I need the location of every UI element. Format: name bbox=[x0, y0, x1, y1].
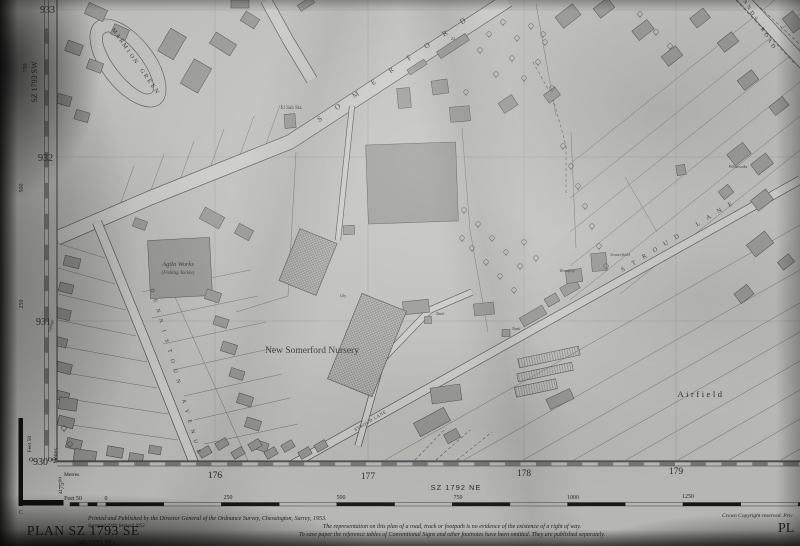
boundary-line bbox=[266, 105, 280, 144]
street-dennistoun-avenue-char: U bbox=[172, 368, 179, 374]
building bbox=[58, 282, 74, 294]
boundary-line bbox=[240, 116, 254, 155]
street-dennistoun-avenue-char: E bbox=[151, 298, 158, 304]
corner-mark-horizontal bbox=[19, 500, 64, 506]
tree-icon bbox=[512, 288, 517, 293]
building bbox=[158, 28, 187, 60]
tree-icon bbox=[498, 274, 503, 279]
building bbox=[63, 255, 81, 269]
sheet-border-layer bbox=[19, 0, 800, 506]
tree-icon bbox=[501, 20, 506, 25]
boundary-line bbox=[58, 268, 115, 284]
tree-icon bbox=[543, 40, 548, 45]
bottom-border-scale-block bbox=[351, 462, 366, 465]
building bbox=[236, 393, 253, 407]
street-dennistoun-avenue-char: O bbox=[169, 358, 176, 364]
border-scale-750: 750 bbox=[23, 64, 29, 73]
road-surface-nursery-drive bbox=[338, 106, 352, 240]
building bbox=[297, 0, 314, 11]
street-stroud-lane: STROUDLANE bbox=[620, 201, 734, 274]
building bbox=[84, 2, 107, 21]
scale-250: 250 bbox=[224, 495, 233, 501]
track-dashed-line bbox=[553, 98, 566, 146]
adjacent-plan-title: PL bbox=[778, 521, 794, 536]
grid-northing-932: 932 bbox=[38, 153, 53, 164]
el-sub-sta: El Sub Sta bbox=[280, 106, 302, 111]
left-border-scale-block bbox=[45, 28, 49, 43]
building bbox=[343, 225, 354, 234]
street-stroud-lane-char: L bbox=[695, 220, 702, 228]
tree-icon bbox=[462, 208, 467, 213]
boundary-line bbox=[57, 243, 105, 258]
imprint-line-1: Printed and Published by the Director Ge… bbox=[87, 515, 326, 522]
scale-bar-subblock bbox=[70, 503, 79, 507]
boundary-line bbox=[236, 296, 288, 312]
street-stroud-lane-char: R bbox=[641, 252, 649, 261]
scale-1250: 1250 bbox=[682, 494, 694, 500]
house-somerfield: Somerfield bbox=[610, 252, 630, 257]
boundary-line bbox=[470, 230, 488, 332]
glasshouse bbox=[279, 229, 337, 296]
building bbox=[180, 59, 211, 93]
scale-0: 0 bbox=[105, 496, 108, 502]
boundary-line bbox=[620, 150, 800, 294]
scale-bar-segment bbox=[741, 503, 799, 507]
building bbox=[213, 316, 229, 329]
scale-bar-segment bbox=[510, 503, 568, 507]
scale-bar-segment bbox=[625, 503, 683, 507]
house-woodjay: Woodjay bbox=[559, 268, 575, 273]
building bbox=[58, 397, 77, 411]
boundary-line bbox=[570, 116, 800, 300]
tank-2: Tank bbox=[512, 326, 522, 331]
street-stroud-lane-char: O bbox=[652, 246, 660, 255]
street-stroud-lane-char: D bbox=[673, 233, 681, 242]
scale-feet-50: Feet 50 bbox=[64, 496, 82, 502]
grid-easting-176: 176 bbox=[208, 471, 223, 481]
adjoining-sheet-south: SZ 1792 NE bbox=[431, 483, 482, 492]
border-scale-250: 250 bbox=[19, 300, 25, 309]
bottom-border-scale-block bbox=[320, 462, 335, 465]
street-marmion-green: MARMIONGREEN bbox=[110, 28, 160, 96]
house-number-22: 22 bbox=[451, 36, 456, 41]
scale-bar-segment bbox=[164, 503, 222, 507]
bottom-border-scale-block bbox=[567, 462, 582, 465]
bottom-border-scale-block bbox=[505, 462, 520, 465]
building bbox=[234, 223, 253, 240]
boundary-line bbox=[163, 322, 266, 344]
crown-copyright: Crown Copyright reserved. Pric bbox=[722, 513, 793, 519]
adjoining-sheet-west: SZ 1793 SW bbox=[30, 61, 39, 103]
airfield: Airfield bbox=[678, 389, 725, 399]
glass-shed bbox=[514, 379, 557, 398]
scale-bar-segment bbox=[221, 503, 279, 507]
tree-icon bbox=[487, 32, 492, 37]
scale-bar-segment bbox=[568, 503, 626, 507]
border-feet-50-vertical: Feet 50 bbox=[27, 436, 33, 453]
boundary-line bbox=[462, 128, 470, 230]
street-dennistoun-avenue-char: U bbox=[192, 439, 199, 445]
left-border-scale-block bbox=[45, 214, 49, 229]
grid-northing-933: 933 bbox=[40, 5, 55, 16]
street-dennistoun-avenue-char: N bbox=[157, 318, 164, 324]
building bbox=[204, 289, 221, 303]
left-border-scale-block bbox=[45, 368, 49, 383]
building bbox=[231, 447, 245, 460]
building bbox=[65, 40, 84, 56]
tank-1: Tank bbox=[436, 311, 446, 316]
scale-750: 750 bbox=[454, 495, 463, 501]
tree-icon bbox=[536, 60, 541, 65]
building bbox=[777, 254, 794, 270]
footnote-rights-of-way: The representation on this plan of a roa… bbox=[323, 523, 581, 530]
boundary-line bbox=[58, 320, 136, 336]
building bbox=[240, 11, 259, 29]
scale-bar-subblock bbox=[88, 503, 97, 507]
map-content-layer bbox=[52, 0, 800, 470]
grid-northing-930: ⁰930⁰⁰ bbox=[29, 457, 56, 468]
street-ands-road-char: A bbox=[766, 37, 773, 44]
building bbox=[148, 445, 161, 455]
street-dennistoun-avenue-char: N bbox=[154, 308, 161, 314]
bottom-border-scale-block bbox=[289, 462, 304, 465]
bottom-border-scale-block bbox=[381, 462, 396, 465]
building bbox=[413, 407, 450, 436]
street-dennistoun-avenue-char: E bbox=[186, 419, 193, 425]
corner-mark-vertical bbox=[19, 418, 24, 506]
street-stroud-lane-char: N bbox=[716, 207, 724, 216]
tree-icon bbox=[494, 72, 499, 77]
bottom-border-scale-block bbox=[474, 462, 489, 465]
left-border-scale-block bbox=[45, 59, 49, 74]
boundary-line bbox=[64, 424, 178, 440]
street-dennistoun-avenue-char: V bbox=[183, 409, 190, 415]
street-dennistoun-avenue-char: A bbox=[180, 399, 187, 405]
building bbox=[443, 428, 460, 443]
building bbox=[676, 164, 687, 175]
house-whiteoaks: Whiteoaks bbox=[729, 164, 748, 169]
building bbox=[782, 11, 800, 33]
tree-icon bbox=[529, 24, 534, 29]
tree-icon bbox=[518, 264, 523, 269]
tree-icon bbox=[464, 90, 469, 95]
bottom-border-scale-block bbox=[103, 462, 118, 465]
bottom-border-scale-block bbox=[196, 462, 211, 465]
building bbox=[734, 284, 754, 303]
boundary-line bbox=[152, 296, 258, 318]
bottom-border-scale-block bbox=[660, 462, 675, 465]
building bbox=[555, 4, 581, 29]
tree-icon bbox=[534, 256, 539, 261]
tree-icon bbox=[576, 184, 581, 189]
agila-works: Agila Works bbox=[161, 261, 194, 268]
building bbox=[148, 237, 213, 298]
tree-icon bbox=[638, 12, 643, 17]
street-dennistoun-avenue-char: N bbox=[174, 378, 181, 384]
building bbox=[281, 440, 295, 453]
building bbox=[402, 299, 429, 315]
scale-500: 500 bbox=[337, 495, 346, 501]
building bbox=[544, 293, 560, 307]
boundary-line bbox=[62, 398, 168, 414]
street-marmion-green-char: N bbox=[131, 58, 139, 66]
building bbox=[284, 114, 296, 129]
scale-bar-segment bbox=[106, 503, 164, 507]
left-border-scale-block bbox=[45, 337, 49, 352]
tree-icon bbox=[590, 224, 595, 229]
scale-bar-segment bbox=[683, 503, 741, 507]
building bbox=[473, 302, 494, 316]
track-dashed-line bbox=[457, 432, 492, 460]
building bbox=[56, 93, 72, 106]
tree-icon bbox=[654, 30, 659, 35]
ordnance-survey-plan: 933932931⁰930⁰⁰⁴¹75⁰⁰SZ 1793 SW750500250… bbox=[0, 0, 800, 546]
left-border-scale-block bbox=[45, 245, 49, 260]
street-dennistoun-avenue-char: T bbox=[166, 349, 173, 355]
bottom-border-scale-block bbox=[690, 462, 705, 465]
tree-icon bbox=[478, 48, 483, 53]
building bbox=[737, 70, 759, 91]
bottom-border-scale-block bbox=[783, 462, 798, 465]
street-somerford-road: SOMERFORD bbox=[315, 15, 467, 123]
footnote-conventional-signs: To save paper the reference tables of Co… bbox=[299, 531, 605, 538]
tree-icon bbox=[515, 36, 520, 41]
building bbox=[591, 252, 608, 271]
building bbox=[449, 106, 470, 123]
building bbox=[231, 0, 249, 8]
chimney: Chy bbox=[340, 293, 347, 298]
boundary-line bbox=[678, 390, 800, 460]
left-border-scale-block bbox=[45, 121, 49, 136]
bottom-border-scale-block bbox=[536, 462, 551, 465]
bottom-border-scale-block bbox=[412, 462, 427, 465]
border-metres-horizontal: Metres bbox=[64, 472, 79, 478]
building bbox=[52, 336, 68, 348]
building bbox=[690, 8, 711, 28]
bottom-border-scale-block bbox=[598, 462, 613, 465]
grid-easting-177: 177 bbox=[361, 472, 376, 482]
building bbox=[543, 87, 560, 103]
boundary-line bbox=[781, 449, 800, 460]
map-photo: 933932931⁰930⁰⁰⁴¹75⁰⁰SZ 1793 SW750500250… bbox=[0, 0, 800, 546]
tree-icon bbox=[668, 44, 673, 49]
building bbox=[593, 0, 615, 18]
building bbox=[431, 79, 449, 95]
building bbox=[215, 438, 229, 451]
grid-easting-178: 178 bbox=[517, 469, 532, 479]
tree-icon bbox=[460, 236, 465, 241]
scale-bar-segment bbox=[395, 503, 453, 507]
building bbox=[132, 218, 147, 231]
building bbox=[498, 95, 518, 114]
tree-icon bbox=[510, 56, 515, 61]
street-dennistoun-avenue-char: I bbox=[160, 329, 166, 333]
scale-bar-segment bbox=[337, 503, 395, 507]
building bbox=[727, 142, 751, 165]
building bbox=[74, 109, 90, 122]
building bbox=[199, 207, 225, 229]
building bbox=[220, 341, 237, 355]
boundary-line bbox=[60, 346, 147, 362]
building bbox=[244, 417, 261, 431]
left-border-scale-block bbox=[45, 399, 49, 414]
boundary-line bbox=[625, 177, 657, 232]
tree-icon bbox=[470, 246, 475, 251]
building bbox=[751, 153, 774, 175]
boundary-line bbox=[58, 294, 126, 310]
boundary-line bbox=[626, 361, 800, 460]
building bbox=[66, 437, 83, 450]
bottom-border-scale-block bbox=[134, 462, 149, 465]
bottom-border-scale-block bbox=[721, 462, 736, 465]
scale-bar-segment bbox=[279, 503, 337, 507]
marmion-green-loop-inner bbox=[94, 25, 161, 101]
bottom-border-scale-block bbox=[227, 462, 242, 465]
tree-icon bbox=[583, 204, 588, 209]
street-stroud-lane-char: U bbox=[662, 239, 670, 248]
building bbox=[56, 361, 73, 374]
left-border-scale-block bbox=[45, 276, 49, 291]
building bbox=[209, 32, 236, 56]
left-border-scale-block bbox=[45, 430, 49, 445]
bottom-border-scale-block bbox=[258, 462, 273, 465]
grid-easting-179: 179 bbox=[669, 467, 684, 477]
scale-bar-subblock bbox=[79, 503, 88, 507]
left-border-scale-block bbox=[45, 90, 49, 105]
building bbox=[106, 446, 123, 459]
corner-easting: ⁴¹75⁰⁰ bbox=[58, 477, 66, 494]
building bbox=[632, 19, 654, 40]
boundary-line bbox=[60, 372, 157, 388]
building bbox=[229, 368, 245, 381]
scale-bar-subblock bbox=[97, 503, 106, 507]
road-surface-junction-road bbox=[266, 0, 312, 80]
tree-icon bbox=[561, 144, 566, 149]
bottom-border-scale-block bbox=[165, 462, 180, 465]
street-marmion-green-char: I bbox=[125, 49, 131, 54]
plan-title: PLAN SZ 1793 SE bbox=[27, 523, 140, 538]
building bbox=[397, 87, 412, 108]
tree-icon bbox=[504, 250, 509, 255]
bottom-border-scale-block bbox=[752, 462, 767, 465]
bottom-border-scale-block bbox=[629, 462, 644, 465]
building bbox=[546, 389, 574, 410]
border-metres-vertical: Metres bbox=[53, 448, 59, 463]
building bbox=[661, 46, 683, 67]
plan-subtitle: (40/1793 SE) bbox=[77, 539, 115, 546]
bottom-border-scale-block bbox=[443, 462, 458, 465]
street-ands-road-char: D bbox=[769, 43, 776, 50]
street-ands-road-char: O bbox=[762, 32, 769, 39]
copyright-mark: C bbox=[19, 510, 23, 516]
boundary-line bbox=[523, 303, 800, 460]
building bbox=[425, 317, 432, 324]
street-dennistoun-avenue-char: N bbox=[189, 429, 196, 435]
building bbox=[502, 330, 510, 337]
building bbox=[769, 96, 789, 115]
agila-works-sub: (Fishing Tackle) bbox=[162, 271, 195, 276]
scale-bar-segment bbox=[452, 503, 510, 507]
tree-icon bbox=[597, 244, 602, 249]
building bbox=[86, 59, 104, 74]
boundary-line bbox=[729, 419, 800, 460]
scale-1000: 1000 bbox=[567, 495, 579, 501]
border-scale-500: 500 bbox=[19, 184, 25, 193]
street-stroud-lane-char: T bbox=[630, 259, 637, 267]
new-somerford-nursery: New Somerford Nursery bbox=[265, 345, 359, 356]
tree-icon bbox=[484, 260, 489, 265]
boundary-line bbox=[464, 270, 800, 460]
bottom-border-scale-block bbox=[72, 462, 87, 465]
left-border-scale-block bbox=[45, 183, 49, 198]
building bbox=[366, 142, 459, 224]
building bbox=[718, 184, 734, 199]
tree-icon bbox=[490, 236, 495, 241]
building bbox=[717, 32, 739, 53]
tree-icon bbox=[476, 222, 481, 227]
